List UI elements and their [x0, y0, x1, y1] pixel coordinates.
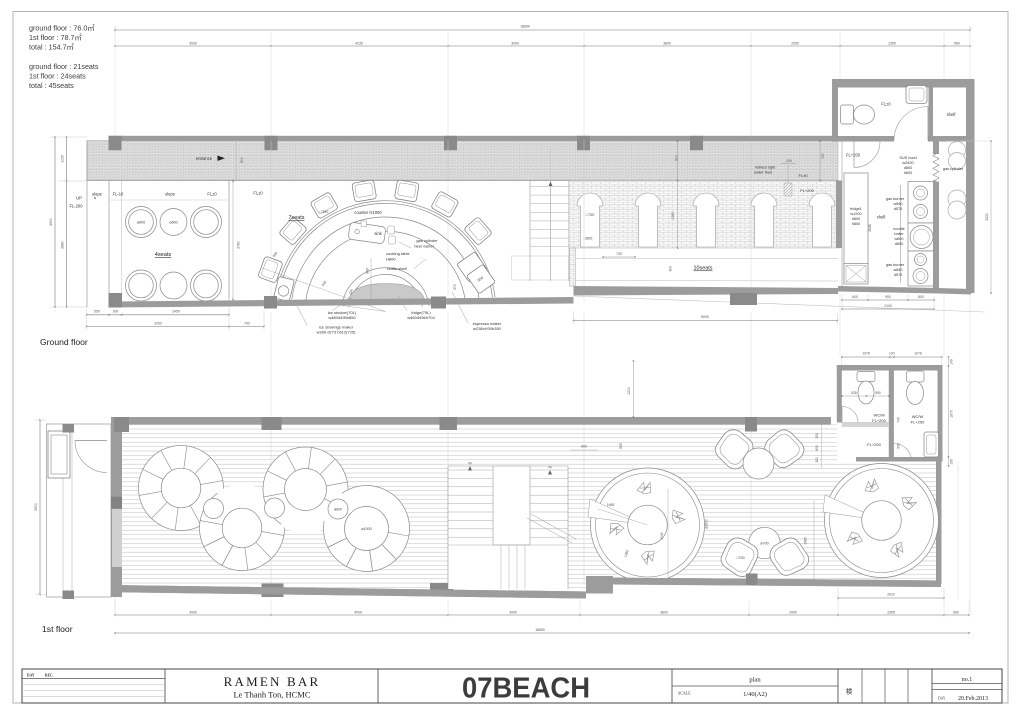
svg-text:ground floor : 21seats: ground floor : 21seats	[29, 62, 99, 71]
svg-text:1665: 1665	[607, 503, 615, 507]
svg-text:SCALE: SCALE	[678, 691, 691, 696]
svg-text:FL±0: FL±0	[798, 173, 808, 178]
svg-text:5900: 5900	[34, 503, 38, 511]
svg-text:3930: 3930	[189, 42, 197, 46]
svg-text:d570: d570	[894, 207, 902, 211]
svg-text:FL+200: FL+200	[872, 418, 886, 423]
svg-text:up: up	[548, 465, 552, 469]
svg-text:2050: 2050	[791, 42, 799, 46]
svg-text:RAMEN BAR: RAMEN BAR	[224, 674, 321, 689]
svg-text:REC.: REC.	[45, 674, 54, 678]
svg-text:h600: h600	[904, 171, 912, 175]
svg-text:ø700: ø700	[760, 542, 768, 546]
svg-text:2610: 2610	[887, 593, 895, 597]
svg-text:FL+200: FL+200	[800, 188, 814, 193]
svg-text:100: 100	[950, 459, 954, 465]
svg-text:300: 300	[113, 310, 119, 314]
svg-text:1st floor : 78.7㎡: 1st floor : 78.7㎡	[29, 33, 82, 42]
svg-text:shelf: shelf	[877, 215, 887, 220]
svg-text:WC/W: WC/W	[912, 414, 924, 419]
svg-text:2060: 2060	[789, 611, 797, 615]
svg-text:2645: 2645	[868, 224, 872, 232]
svg-text:3930: 3930	[189, 611, 197, 615]
svg-text:Ground floor: Ground floor	[40, 337, 88, 347]
svg-text:910: 910	[675, 155, 679, 161]
svg-text:DAY: DAY	[938, 697, 946, 701]
svg-text:gas burner: gas burner	[886, 197, 905, 201]
svg-text:noodle: noodle	[893, 227, 904, 231]
svg-text:550: 550	[94, 310, 100, 314]
svg-text:3800: 3800	[663, 42, 671, 46]
svg-text:ground floor : 76.0㎡: ground floor : 76.0㎡	[29, 24, 95, 33]
svg-text:110: 110	[815, 457, 819, 462]
svg-text:cooking table: cooking table	[386, 251, 410, 256]
svg-text:560: 560	[953, 611, 959, 615]
svg-text:d600: d600	[895, 242, 903, 246]
svg-text:3800: 3800	[660, 611, 668, 615]
svg-text:sink: sink	[374, 231, 382, 236]
svg-text:ø600: ø600	[334, 508, 342, 512]
svg-text:18890: 18890	[535, 628, 545, 632]
svg-text:FL±0: FL±0	[207, 192, 217, 197]
svg-text:20.Feb.2013: 20.Feb.2013	[958, 696, 988, 702]
svg-text:検: 検	[846, 687, 853, 696]
svg-text:d800: d800	[904, 166, 912, 170]
svg-text:900: 900	[240, 157, 244, 163]
svg-text:w480d495h850: w480d495h850	[328, 315, 356, 320]
svg-text:plan: plan	[749, 677, 761, 684]
svg-text:total : 45seats: total : 45seats	[29, 81, 74, 90]
svg-text:d570: d570	[894, 273, 902, 277]
svg-text:2395: 2395	[887, 611, 895, 615]
svg-text:indirect light: indirect light	[755, 166, 776, 170]
svg-text:3250: 3250	[154, 321, 162, 325]
svg-text:w600: w600	[894, 237, 903, 241]
svg-text:2880: 2880	[61, 241, 65, 249]
svg-text:counter H1000: counter H1000	[354, 210, 382, 215]
svg-text:10seats: 10seats	[694, 266, 713, 272]
svg-text:7seats: 7seats	[289, 215, 305, 221]
svg-text:1685: 1685	[804, 537, 808, 545]
svg-text:shelf: shelf	[947, 112, 957, 117]
svg-text:FL-10: FL-10	[113, 192, 124, 197]
svg-text:4seats: 4seats	[155, 252, 172, 258]
svg-text:gas cylinder: gas cylinder	[943, 167, 964, 171]
svg-text:w840: w840	[893, 268, 902, 272]
svg-text:3330: 3330	[985, 213, 989, 221]
svg-text:4235: 4235	[355, 42, 363, 46]
svg-text:gas cylinder: gas cylinder	[416, 238, 438, 243]
svg-text:w1200: w1200	[850, 212, 861, 216]
svg-text:under floor: under floor	[754, 171, 773, 175]
svg-text:slope: slope	[92, 192, 103, 197]
svg-text:999: 999	[366, 268, 370, 274]
svg-text:WC/M: WC/M	[873, 413, 884, 418]
svg-text:beer barrel: beer barrel	[414, 244, 433, 249]
svg-text:900: 900	[885, 295, 891, 299]
svg-text:□700: □700	[586, 213, 595, 217]
svg-text:1078: 1078	[862, 352, 870, 356]
svg-text:FL±0: FL±0	[253, 191, 263, 196]
svg-text:h800: h800	[852, 222, 860, 226]
svg-text:ø600: ø600	[137, 221, 145, 225]
svg-text:boiler: boiler	[894, 232, 904, 236]
svg-text:550: 550	[875, 391, 881, 395]
svg-text:2780: 2780	[237, 241, 241, 249]
svg-text:FL+200: FL+200	[867, 442, 881, 447]
svg-text:600: 600	[852, 295, 858, 299]
svg-text:slope: slope	[165, 192, 176, 197]
svg-text:720: 720	[821, 153, 825, 159]
svg-text:3090: 3090	[509, 611, 517, 615]
svg-text:□600: □600	[584, 237, 593, 241]
svg-text:100: 100	[889, 352, 895, 356]
svg-text:1385: 1385	[671, 212, 675, 220]
svg-text:DAY: DAY	[27, 674, 35, 678]
svg-text:ø2600: ø2600	[705, 519, 709, 529]
svg-text:740: 740	[897, 417, 901, 423]
svg-text:3900: 3900	[49, 218, 53, 226]
svg-text:100: 100	[815, 433, 819, 439]
svg-text:1040: 1040	[660, 532, 664, 540]
svg-text:690: 690	[815, 445, 819, 451]
svg-text:800: 800	[669, 266, 673, 272]
svg-text:550: 550	[897, 443, 901, 449]
svg-text:SUS hood: SUS hood	[899, 156, 916, 160]
svg-text:w399 d273 h612(725): w399 d273 h612(725)	[317, 330, 357, 335]
svg-text:entrance: entrance	[196, 156, 213, 161]
svg-text:w460d496h704: w460d496h704	[407, 315, 435, 320]
svg-text:2100: 2100	[884, 304, 892, 308]
svg-text:800: 800	[918, 295, 924, 299]
svg-text:600: 600	[581, 445, 587, 449]
svg-text:4000: 4000	[354, 611, 362, 615]
svg-text:18890: 18890	[520, 25, 530, 29]
svg-text:1078: 1078	[914, 352, 922, 356]
svg-text:gas burner: gas burner	[886, 263, 905, 267]
svg-text:total : 154.7㎡: total : 154.7㎡	[29, 42, 74, 51]
svg-text:1210: 1210	[627, 387, 631, 395]
svg-text:□700: □700	[736, 556, 744, 560]
svg-text:560: 560	[954, 42, 960, 46]
svg-text:1st floor : 24seats: 1st floor : 24seats	[29, 71, 86, 80]
svg-text:H800: H800	[386, 257, 396, 262]
svg-text:730: 730	[616, 252, 622, 256]
svg-text:d600: d600	[852, 217, 860, 221]
svg-text:790: 790	[244, 321, 250, 325]
svg-text:FL+200: FL+200	[846, 153, 861, 158]
svg-text:1025: 1025	[61, 155, 65, 163]
svg-text:ø600: ø600	[169, 221, 177, 225]
svg-text:140: 140	[950, 359, 954, 365]
svg-text:fridge1: fridge1	[850, 207, 862, 211]
svg-text:2450: 2450	[172, 310, 180, 314]
svg-text:w840: w840	[893, 202, 902, 206]
svg-text:2395: 2395	[888, 42, 896, 46]
svg-text:□390: □390	[320, 210, 329, 214]
svg-text:ø1000: ø1000	[361, 527, 371, 531]
svg-text:Le Thanh Ton, HCMC: Le Thanh Ton, HCMC	[233, 690, 310, 700]
svg-text:w2400: w2400	[902, 161, 913, 165]
svg-text:no.1: no.1	[962, 677, 973, 683]
svg-text:570: 570	[453, 284, 457, 290]
svg-text:07BEACH: 07BEACH	[462, 673, 590, 705]
svg-text:1st floor: 1st floor	[42, 624, 73, 634]
svg-text:UP: UP	[76, 196, 82, 201]
svg-text:FL+200: FL+200	[911, 420, 925, 425]
svg-text:528: 528	[851, 391, 857, 395]
svg-text:FL±0: FL±0	[881, 102, 891, 107]
svg-text:FL-200: FL-200	[70, 204, 84, 209]
svg-text:6000: 6000	[701, 315, 709, 319]
svg-text:w238xH30h350: w238xH30h350	[473, 326, 502, 331]
svg-text:bottle shelf: bottle shelf	[387, 266, 407, 271]
svg-text:up: up	[468, 461, 472, 465]
svg-text:3090: 3090	[511, 42, 519, 46]
svg-text:1/40(A2): 1/40(A2)	[743, 691, 767, 698]
svg-text:200: 200	[786, 159, 792, 163]
svg-text:1870: 1870	[950, 410, 954, 418]
svg-text:935: 935	[619, 443, 623, 449]
